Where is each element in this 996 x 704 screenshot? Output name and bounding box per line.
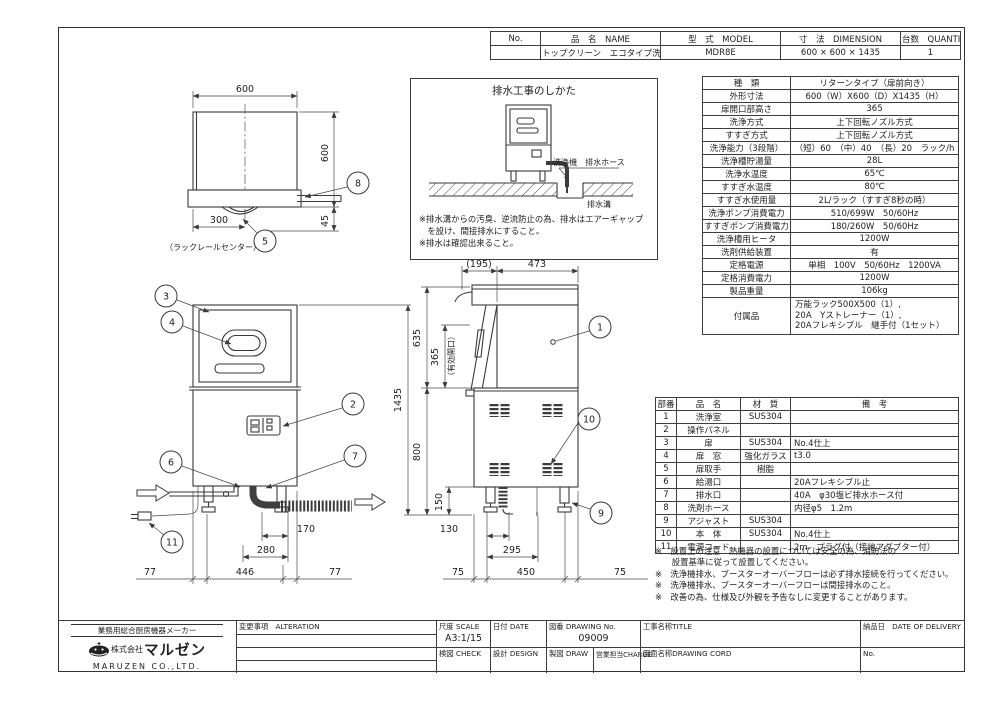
spec-label: 洗浄水温度 bbox=[703, 168, 791, 181]
part-name: 洗浄室 bbox=[677, 411, 741, 424]
dim-77-right: 77 bbox=[329, 567, 341, 578]
spec-value: 2L/ラック（すすぎ8秒の時） bbox=[791, 194, 959, 207]
spec-value: 106kg bbox=[791, 285, 959, 298]
svg-text:9: 9 bbox=[598, 509, 604, 520]
part-material bbox=[741, 502, 791, 515]
delivery-label: 納品日 DATE OF DELIVERY bbox=[861, 621, 965, 633]
part-remarks bbox=[791, 411, 959, 424]
spec-label: 洗浄槽貯湯量 bbox=[703, 155, 791, 168]
drain-note-1: ※排水溝からの汚臭、逆流防止の為、排水はエアーギャップ bbox=[419, 214, 644, 224]
drain-diagram: 排水工事のしかた 洗浄機 排水ホース 排水溝 bbox=[411, 79, 657, 259]
charge-label: 営業担当CHARGE bbox=[594, 648, 640, 660]
dim-top-width: 600 bbox=[236, 84, 254, 95]
note-line: ※ 洗浄機排水、ブースターオーバーフローは必ず排水接続を行ってください。 bbox=[655, 569, 965, 580]
spec-label: 扉開口部高さ bbox=[703, 103, 791, 116]
drain-instruction-box: 排水工事のしかた 洗浄機 排水ホース 排水溝 bbox=[410, 78, 658, 260]
spec-label: 製品重量 bbox=[703, 285, 791, 298]
svg-text:1: 1 bbox=[597, 323, 603, 334]
company-name: マルゼン bbox=[144, 639, 206, 660]
dim-635: 635 bbox=[412, 329, 423, 347]
floor-hatch bbox=[429, 183, 633, 196]
spec-value: （短）60 （中）40 （長）20 ラック/h bbox=[791, 142, 959, 155]
note-line: 設置基準に従って設置してください。 bbox=[655, 557, 965, 568]
title-block: 業務用総合厨房機器メーカー 株式会社 マルゼン MARUZEN CO.,LTD.… bbox=[58, 620, 965, 672]
spec-value: 1200W bbox=[791, 272, 959, 285]
spec-label: 洗浄槽用ヒータ bbox=[703, 233, 791, 246]
check-label: 検図 CHECK bbox=[437, 648, 490, 660]
dim-280: 280 bbox=[257, 545, 275, 556]
part-no: 7 bbox=[656, 489, 677, 502]
rail-center-note: （ラックレールセンター） bbox=[165, 243, 261, 252]
spec-value: 80℃ bbox=[791, 181, 959, 194]
header-col-dimension: 寸 法 DIMENSION bbox=[781, 32, 901, 46]
svg-text:8: 8 bbox=[355, 179, 361, 190]
spec-value: 180/260W 50/60Hz bbox=[791, 220, 959, 233]
dim-450: 450 bbox=[517, 567, 535, 578]
drain-note-3: ※排水は確認出来ること。 bbox=[419, 238, 518, 248]
charge-cell: 営業担当CHARGE bbox=[593, 647, 640, 673]
spec-label: 洗剤供給装置 bbox=[703, 246, 791, 259]
spec-label: 洗浄方式 bbox=[703, 116, 791, 129]
spec-label: 洗浄ポンプ消費電力 bbox=[703, 207, 791, 220]
balloon-8: 8 bbox=[305, 172, 369, 197]
header-val-quantity: 1 bbox=[901, 46, 961, 60]
header-val-no bbox=[491, 46, 541, 60]
part-remarks bbox=[791, 463, 959, 476]
part-no: 4 bbox=[656, 450, 677, 463]
part-material: 樹脂 bbox=[741, 463, 791, 476]
part-no: 6 bbox=[656, 476, 677, 489]
date-cell: 日付 DATE bbox=[490, 621, 546, 647]
scale-label: 尺度 SCALE bbox=[437, 621, 490, 633]
note-line: ※ 改善の為、仕様及び外観を予告なしに変更することがあります。 bbox=[655, 592, 965, 603]
drain-gutter-pocket bbox=[557, 182, 583, 199]
leg bbox=[277, 486, 286, 502]
part-material: 強化ガラス bbox=[741, 450, 791, 463]
part-no: 3 bbox=[656, 437, 677, 450]
svg-text:11: 11 bbox=[166, 538, 178, 549]
spec-value: 有 bbox=[791, 246, 959, 259]
part-name: 給湯口 bbox=[677, 476, 741, 489]
drain-note-2: を設け、間接排水にすること。 bbox=[419, 226, 544, 236]
company-logo-box: 業務用総合厨房機器メーカー 株式会社 マルゼン MARUZEN CO.,LTD. bbox=[58, 621, 236, 673]
part-name: アジャスト bbox=[677, 515, 741, 528]
note-line: ※ 洗浄機排水、ブースターオーバーフローは間接排水のこと。 bbox=[655, 580, 965, 591]
dim-365: 365 bbox=[430, 348, 441, 366]
part-remarks bbox=[791, 515, 959, 528]
check-cell: 検図 CHECK bbox=[436, 647, 490, 673]
installation-notes: ※ 設置上の注意 熱機器の設置については安全の為、消防法の 設置基準に従って設置… bbox=[655, 546, 965, 603]
alteration-box: 変更事項 ALTERATION bbox=[236, 621, 436, 673]
spec-label: 外形寸法 bbox=[703, 90, 791, 103]
hose-label: 洗浄機 排水ホース bbox=[553, 157, 625, 167]
spec-value: 単相 100V 50/60Hz 1200VA bbox=[791, 259, 959, 272]
parts-table: 部番 品 名 材 質 備 考 1洗浄室SUS304 2操作パネル 3扉SUS30… bbox=[655, 397, 959, 554]
company-prefix: 株式会社 bbox=[111, 644, 143, 655]
drawing-no-cell: 図番 DRAWING No. 09009 bbox=[546, 621, 640, 647]
spec-label: すすぎ方式 bbox=[703, 129, 791, 142]
part-no: 5 bbox=[656, 463, 677, 476]
spec-table: 種 類リターンタイプ（扉前向き） 外形寸法600（W）X600（D）X1435（… bbox=[702, 76, 959, 335]
spec-label: すすぎ水温度 bbox=[703, 181, 791, 194]
no-label: No. bbox=[861, 648, 965, 659]
drawing-cord-label: 図面名称DRAWING CORD bbox=[641, 648, 860, 660]
alteration-divider bbox=[237, 634, 436, 635]
header-col-model: 型 式 MODEL bbox=[661, 32, 781, 46]
date-label: 日付 DATE bbox=[491, 621, 546, 633]
balloon-11: 11 bbox=[149, 523, 183, 553]
header-val-model: MDR8E bbox=[661, 46, 781, 60]
leg bbox=[486, 487, 495, 503]
part-remarks: 内径φ5 1.2m bbox=[791, 502, 959, 515]
svg-text:6: 6 bbox=[168, 458, 174, 469]
drawing-no-label: 図番 DRAWING No. bbox=[547, 621, 640, 633]
draw-label: 製図 DRAW bbox=[547, 648, 593, 660]
spec-value: 上下回転ノズル方式 bbox=[791, 116, 959, 129]
parts-header-remarks: 備 考 bbox=[791, 398, 959, 411]
dim-800: 800 bbox=[412, 443, 423, 461]
parts-header-name: 品 名 bbox=[677, 398, 741, 411]
alteration-label: 変更事項 ALTERATION bbox=[237, 621, 436, 633]
part-name: 扉 窓 bbox=[677, 450, 741, 463]
svg-text:10: 10 bbox=[583, 415, 595, 426]
part-remarks: t3.0 bbox=[791, 450, 959, 463]
draw-cell: 製図 DRAW bbox=[546, 647, 593, 673]
header-val-name: トップクリーン エコタイプ洗浄機 bbox=[541, 46, 661, 60]
part-no: 2 bbox=[656, 424, 677, 437]
dim-295: 295 bbox=[503, 545, 521, 556]
part-name: 排水口 bbox=[677, 489, 741, 502]
spec-label: 洗浄能力（3段階） bbox=[703, 142, 791, 155]
part-no: 1 bbox=[656, 411, 677, 424]
spec-value: 28L bbox=[791, 155, 959, 168]
spec-value: リターンタイプ（扉前向き） bbox=[791, 77, 959, 90]
part-no: 8 bbox=[656, 502, 677, 515]
part-name: 扉 bbox=[677, 437, 741, 450]
power-plug bbox=[138, 512, 151, 520]
delivery-cell: 納品日 DATE OF DELIVERY bbox=[860, 621, 965, 647]
mini-machine bbox=[506, 105, 551, 181]
note-line: ※ 設置上の注意 熱機器の設置については安全の為、消防法の bbox=[655, 546, 965, 557]
part-material: SUS304 bbox=[741, 411, 791, 424]
dim-130: 130 bbox=[440, 524, 458, 535]
gutter-label: 排水溝 bbox=[587, 199, 611, 209]
part-material bbox=[741, 424, 791, 437]
svg-text:4: 4 bbox=[169, 318, 175, 329]
spec-value-accessories: 万能ラック500X500（1）, 20A Yストレーナー（1）, 20Aフレキシ… bbox=[791, 298, 959, 335]
alteration-divider bbox=[237, 647, 436, 648]
part-material: SUS304 bbox=[741, 515, 791, 528]
part-no: 9 bbox=[656, 515, 677, 528]
design-cell: 設計 DESIGN bbox=[490, 647, 546, 673]
part-remarks: 40A φ30塩ビ排水ホース付 bbox=[791, 489, 959, 502]
top-view: 600 600 45 300 （ラックレールセンター） 8 bbox=[165, 84, 369, 252]
drain-box-title: 排水工事のしかた bbox=[492, 84, 576, 97]
part-remarks: No.4仕上 bbox=[791, 528, 959, 541]
svg-text:7: 7 bbox=[352, 452, 358, 463]
scale-cell: 尺度 SCALE A3:1/15 bbox=[436, 621, 490, 647]
part-name: 扉取手 bbox=[677, 463, 741, 476]
part-material bbox=[741, 489, 791, 502]
dim-75-right: 75 bbox=[614, 567, 626, 578]
company-name-en: MARUZEN CO.,LTD. bbox=[58, 662, 236, 671]
spec-label: 定格電源 bbox=[703, 259, 791, 272]
part-name: 本 体 bbox=[677, 528, 741, 541]
header-col-no: No. bbox=[491, 32, 541, 46]
alteration-divider bbox=[237, 660, 436, 661]
dim-rail-300: 300 bbox=[210, 215, 228, 226]
drawing-no-value: 09009 bbox=[547, 633, 640, 644]
spec-value: 65℃ bbox=[791, 168, 959, 181]
header-col-quantity: 台数 QUANTITY bbox=[901, 32, 961, 46]
drawing-sheet: 600 600 45 300 （ラックレールセンター） 8 bbox=[0, 0, 996, 704]
dim-1435: 1435 bbox=[393, 388, 404, 412]
header-col-name: 品 名 NAME bbox=[541, 32, 661, 46]
dim-446: 446 bbox=[236, 567, 254, 578]
spec-value: 上下回転ノズル方式 bbox=[791, 129, 959, 142]
title-cell: 工事名称TITLE bbox=[640, 621, 860, 647]
open-door bbox=[471, 305, 497, 390]
part-material bbox=[741, 476, 791, 489]
inlet-flow-arrow bbox=[137, 485, 169, 501]
part-name: 操作パネル bbox=[677, 424, 741, 437]
svg-text:5: 5 bbox=[262, 237, 268, 248]
dim-150: 150 bbox=[434, 493, 445, 511]
dim-170: 170 bbox=[297, 524, 315, 535]
title-label: 工事名称TITLE bbox=[641, 621, 860, 633]
header-val-dimension: 600 × 600 × 1435 bbox=[781, 46, 901, 60]
design-label: 設計 DESIGN bbox=[491, 648, 546, 660]
scale-value: A3:1/15 bbox=[437, 633, 490, 644]
company-slogan: 業務用総合厨房機器メーカー bbox=[71, 624, 223, 637]
part-no: 10 bbox=[656, 528, 677, 541]
dim-77-left: 77 bbox=[144, 567, 156, 578]
spec-label: 種 類 bbox=[703, 77, 791, 90]
spec-label: 定格消費電力 bbox=[703, 272, 791, 285]
drain-elbow bbox=[253, 486, 280, 505]
side-view: 1 10 9 (195) 473 635 365 （有効開口） bbox=[412, 259, 648, 583]
svg-text:2: 2 bbox=[350, 400, 356, 411]
drain-flow-arrow bbox=[355, 494, 385, 510]
spec-label: 付属品 bbox=[703, 298, 791, 335]
spec-label: すすぎポンプ消費電力 bbox=[703, 220, 791, 233]
parts-header-no: 部番 bbox=[656, 398, 677, 411]
parts-header-material: 材 質 bbox=[741, 398, 791, 411]
leg bbox=[204, 486, 213, 502]
maruzen-penguin-logo-icon bbox=[88, 642, 110, 657]
dim-top-45: 45 bbox=[320, 215, 331, 227]
dim-top-height: 600 bbox=[320, 144, 331, 162]
spec-value: 510/699W 50/60Hz bbox=[791, 207, 959, 220]
part-material: SUS304 bbox=[741, 437, 791, 450]
no-cell: No. bbox=[860, 647, 965, 673]
spec-value: 365 bbox=[791, 103, 959, 116]
part-material: SUS304 bbox=[741, 528, 791, 541]
part-remarks: 20Aフレキシブル止 bbox=[791, 476, 959, 489]
spec-value: 1200W bbox=[791, 233, 959, 246]
leg bbox=[560, 487, 569, 503]
drawing-header-table: No. 品 名 NAME 型 式 MODEL 寸 法 DIMENSION 台数 … bbox=[490, 31, 961, 60]
part-remarks: No.4仕上 bbox=[791, 437, 959, 450]
dim-75-left: 75 bbox=[452, 567, 464, 578]
part-remarks bbox=[791, 424, 959, 437]
opening-note: （有効開口） bbox=[446, 332, 456, 380]
spec-value: 600（W）X600（D）X1435（H） bbox=[791, 90, 959, 103]
spec-label: すすぎ水使用量 bbox=[703, 194, 791, 207]
svg-text:3: 3 bbox=[163, 292, 169, 303]
part-name: 洗剤ホース bbox=[677, 502, 741, 515]
drawing-cord-cell: 図面名称DRAWING CORD bbox=[640, 647, 860, 673]
